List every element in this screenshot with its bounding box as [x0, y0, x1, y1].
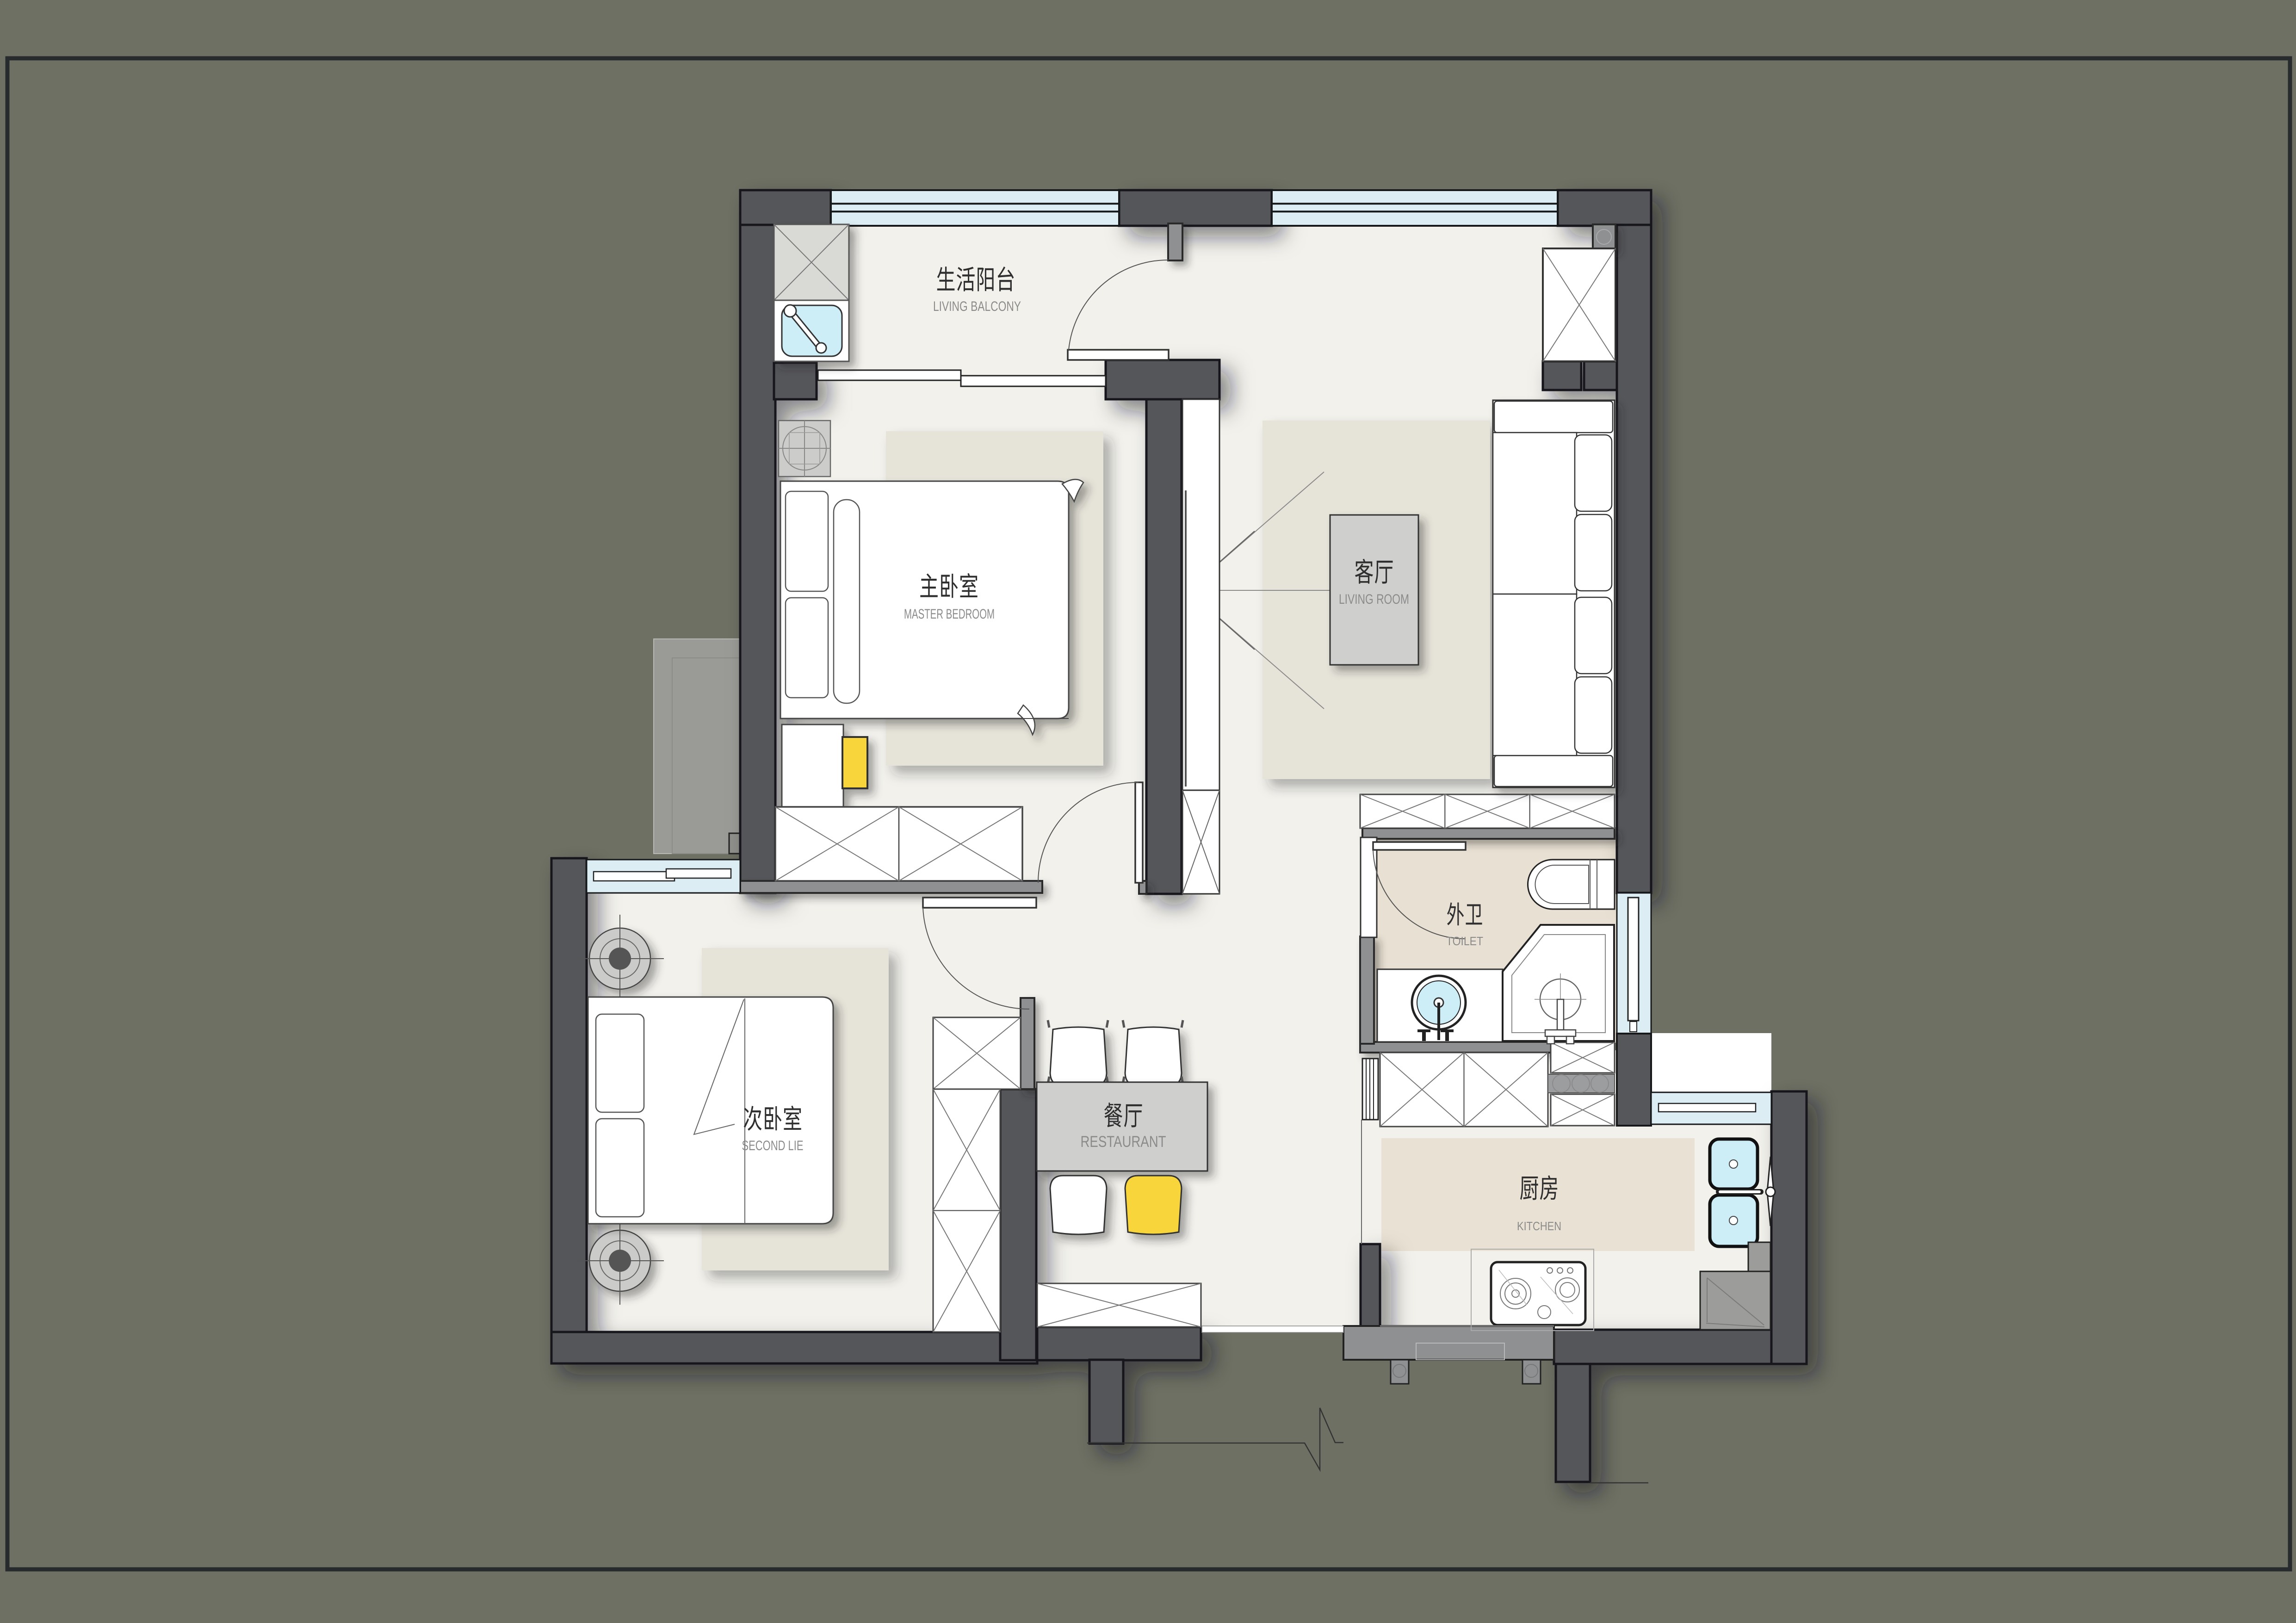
- svg-text:KITCHEN: KITCHEN: [1517, 1219, 1561, 1233]
- svg-text:SECOND LIE: SECOND LIE: [742, 1138, 804, 1153]
- svg-text:LIVING BALCONY: LIVING BALCONY: [933, 299, 1021, 314]
- svg-text:TOILET: TOILET: [1446, 934, 1483, 948]
- svg-text:LIVING ROOM: LIVING ROOM: [1339, 592, 1409, 607]
- svg-text:RESTAURANT: RESTAURANT: [1081, 1133, 1166, 1151]
- svg-text:MASTER BEDROOM: MASTER BEDROOM: [904, 607, 995, 622]
